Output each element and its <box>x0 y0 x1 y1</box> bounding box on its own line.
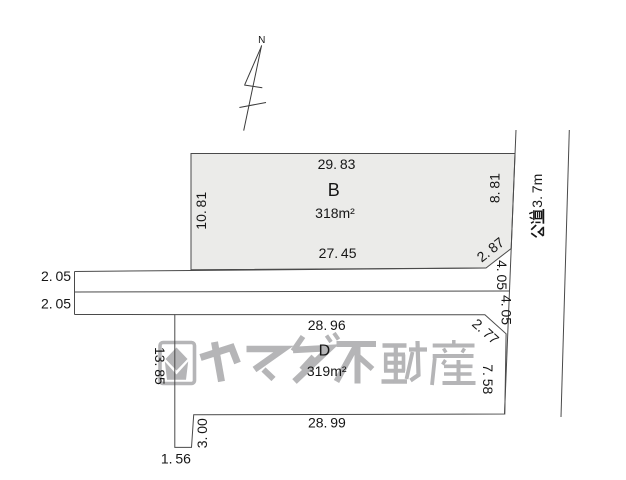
svg-text:8. 81: 8. 81 <box>486 173 502 203</box>
svg-text:3. 00: 3. 00 <box>194 418 210 448</box>
svg-text:318m²: 318m² <box>315 205 355 221</box>
svg-text:3. 7m: 3. 7m <box>529 174 545 208</box>
svg-text:7. 58: 7. 58 <box>480 364 496 394</box>
svg-text:27. 45: 27. 45 <box>319 245 357 261</box>
svg-text:13. 85: 13. 85 <box>152 347 168 385</box>
svg-text:4. 05: 4. 05 <box>494 260 510 290</box>
svg-text:1. 56: 1. 56 <box>161 450 191 466</box>
svg-text:D: D <box>319 342 331 359</box>
svg-text:B: B <box>328 180 340 200</box>
svg-text:29. 83: 29. 83 <box>318 156 356 172</box>
svg-text:28. 99: 28. 99 <box>308 415 346 431</box>
svg-text:2. 05: 2. 05 <box>41 296 71 312</box>
svg-text:N: N <box>258 35 265 46</box>
svg-text:10. 81: 10. 81 <box>193 192 209 230</box>
svg-text:2. 05: 2. 05 <box>41 268 71 284</box>
svg-text:319m²: 319m² <box>307 363 347 379</box>
svg-text:4. 05: 4. 05 <box>499 295 515 325</box>
svg-text:28. 96: 28. 96 <box>308 317 346 333</box>
